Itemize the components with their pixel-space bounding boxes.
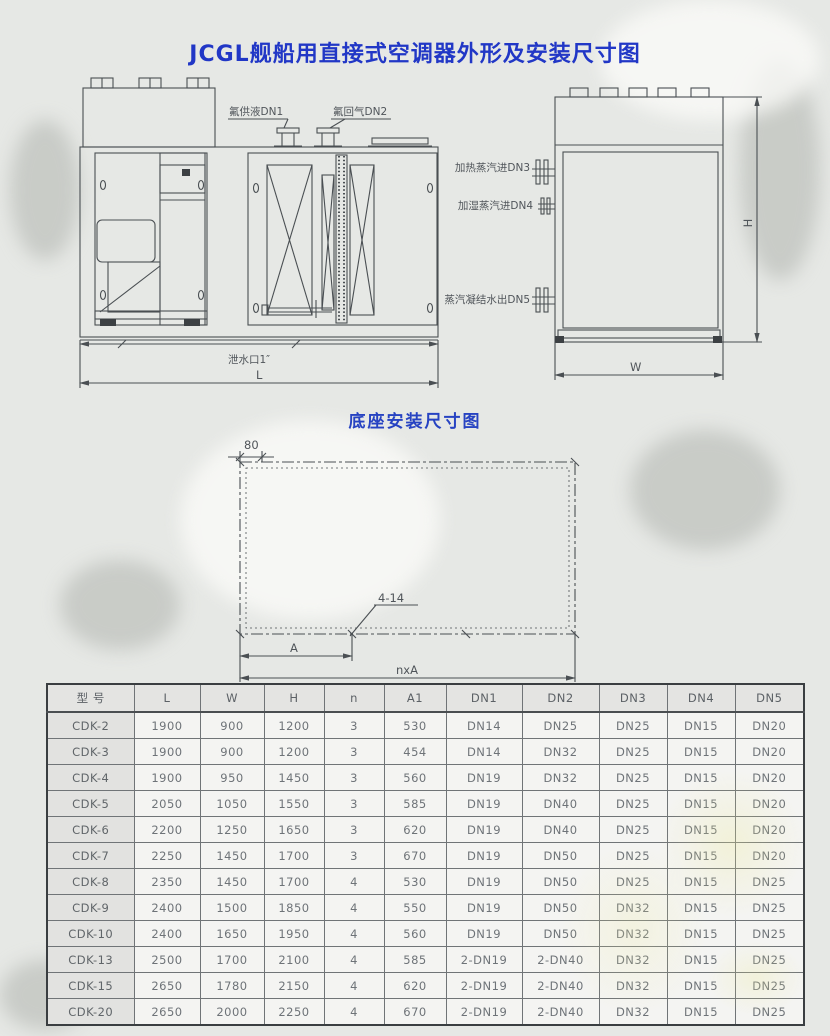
value-cell: 3: [324, 791, 384, 817]
value-cell: 2400: [134, 895, 200, 921]
value-cell: DN15: [667, 973, 735, 999]
value-cell: 2050: [134, 791, 200, 817]
value-cell: DN15: [667, 765, 735, 791]
value-cell: 620: [384, 817, 446, 843]
base-installation-diagram: 80 4-14 A nxA: [0, 435, 830, 690]
dn4-label: 加湿蒸汽进DN4: [458, 199, 533, 212]
spec-table: 型 号LWHnA1DN1DN2DN3DN4DN5 CDK-21900900120…: [46, 683, 805, 1026]
pitch-dim-label: A: [290, 641, 298, 655]
dn5-label: 蒸汽凝结水出DN5: [444, 293, 530, 306]
side-lugs: [570, 88, 709, 97]
value-cell: 2-DN40: [522, 973, 599, 999]
value-cell: 1450: [200, 843, 264, 869]
length-dim-label: L: [256, 368, 263, 382]
coil-section: [248, 153, 437, 325]
side-casing: [555, 97, 723, 342]
value-cell: 1900: [134, 739, 200, 765]
value-cell: 530: [384, 869, 446, 895]
value-cell: 900: [200, 712, 264, 739]
hole-callout-label: 4-14: [378, 591, 404, 605]
value-cell: 620: [384, 973, 446, 999]
value-cell: DN15: [667, 739, 735, 765]
table-row: CDK-1526501780215046202-DN192-DN40DN32DN…: [47, 973, 804, 999]
value-cell: 2500: [134, 947, 200, 973]
value-cell: 4: [324, 947, 384, 973]
dn1-leader: [228, 119, 288, 128]
value-cell: DN20: [735, 791, 804, 817]
value-cell: DN32: [599, 895, 667, 921]
outline-drawing: 氟供液DN1 氟回气DN2 泄水口1″ L: [0, 70, 830, 405]
offset-dimension: [228, 451, 274, 462]
model-cell: CDK-5: [47, 791, 134, 817]
value-cell: 900: [200, 739, 264, 765]
value-cell: 2350: [134, 869, 200, 895]
dn1-label: 氟供液DN1: [229, 105, 283, 118]
value-cell: 2100: [264, 947, 324, 973]
front-top-section: [83, 78, 215, 147]
value-cell: DN20: [735, 765, 804, 791]
model-cell: CDK-6: [47, 817, 134, 843]
value-cell: DN15: [667, 791, 735, 817]
front-view-drawing: [80, 78, 438, 388]
dn3-label: 加热蒸汽进DN3: [455, 161, 530, 174]
value-cell: 560: [384, 921, 446, 947]
value-cell: DN32: [599, 947, 667, 973]
value-cell: 1550: [264, 791, 324, 817]
value-cell: DN25: [735, 947, 804, 973]
value-cell: 1200: [264, 739, 324, 765]
value-cell: DN15: [667, 999, 735, 1026]
table-row: CDK-82350145017004530DN19DN50DN25DN15DN2…: [47, 869, 804, 895]
value-cell: 2000: [200, 999, 264, 1026]
column-header-dn4: DN4: [667, 684, 735, 712]
value-cell: 2-DN40: [522, 999, 599, 1026]
value-cell: 1950: [264, 921, 324, 947]
value-cell: DN14: [446, 712, 522, 739]
value-cell: 1650: [200, 921, 264, 947]
base-diagram-title: 底座安装尺寸图: [0, 407, 830, 432]
value-cell: 2250: [134, 843, 200, 869]
value-cell: 585: [384, 791, 446, 817]
value-cell: 670: [384, 999, 446, 1026]
value-cell: 2-DN19: [446, 947, 522, 973]
value-cell: 530: [384, 712, 446, 739]
value-cell: 1050: [200, 791, 264, 817]
value-cell: 560: [384, 765, 446, 791]
top-flange-plate: [368, 138, 432, 146]
value-cell: 1700: [264, 869, 324, 895]
hole-callout-leader: [350, 605, 418, 636]
value-cell: DN15: [667, 947, 735, 973]
value-cell: DN50: [522, 895, 599, 921]
page-title: JCGL舰船用直接式空调器外形及安装尺寸图: [0, 36, 830, 68]
total-dim-label: nxA: [396, 663, 418, 677]
value-cell: DN25: [735, 869, 804, 895]
value-cell: DN50: [522, 921, 599, 947]
value-cell: DN25: [522, 712, 599, 739]
value-cell: DN20: [735, 739, 804, 765]
value-cell: DN50: [522, 869, 599, 895]
column-header-model: 型 号: [47, 684, 134, 712]
value-cell: 1850: [264, 895, 324, 921]
table-row: CDK-62200125016503620DN19DN40DN25DN15DN2…: [47, 817, 804, 843]
value-cell: DN15: [667, 843, 735, 869]
value-cell: 4: [324, 921, 384, 947]
value-cell: DN25: [735, 921, 804, 947]
value-cell: 4: [324, 973, 384, 999]
value-cell: DN25: [735, 973, 804, 999]
model-cell: CDK-10: [47, 921, 134, 947]
value-cell: DN50: [522, 843, 599, 869]
value-cell: 2150: [264, 973, 324, 999]
value-cell: 1450: [200, 869, 264, 895]
value-cell: DN32: [599, 921, 667, 947]
table-row: CDK-4190095014503560DN19DN32DN25DN15DN20: [47, 765, 804, 791]
value-cell: 3: [324, 739, 384, 765]
spec-table-body: CDK-2190090012003530DN14DN25DN25DN15DN20…: [47, 712, 804, 1025]
value-cell: 4: [324, 895, 384, 921]
value-cell: DN19: [446, 817, 522, 843]
value-cell: 2250: [264, 999, 324, 1026]
value-cell: 1900: [134, 712, 200, 739]
value-cell: 585: [384, 947, 446, 973]
value-cell: DN32: [599, 973, 667, 999]
dn4-pipe-stub: [538, 198, 555, 214]
value-cell: DN15: [667, 869, 735, 895]
dn2-leader: [330, 119, 391, 128]
value-cell: DN40: [522, 817, 599, 843]
value-cell: DN15: [667, 817, 735, 843]
value-cell: DN15: [667, 921, 735, 947]
value-cell: DN25: [735, 999, 804, 1026]
model-cell: CDK-20: [47, 999, 134, 1026]
scanned-page: JCGL舰船用直接式空调器外形及安装尺寸图: [0, 0, 830, 1036]
value-cell: 2-DN19: [446, 973, 522, 999]
value-cell: DN25: [599, 843, 667, 869]
drain-port-label: 泄水口1″: [228, 353, 270, 366]
value-cell: 2-DN19: [446, 999, 522, 1026]
value-cell: 1900: [134, 765, 200, 791]
value-cell: DN32: [522, 739, 599, 765]
dn2-pipe-stub: [314, 128, 342, 147]
value-cell: 1250: [200, 817, 264, 843]
column-header-l: L: [134, 684, 200, 712]
value-cell: 4: [324, 869, 384, 895]
value-cell: DN14: [446, 739, 522, 765]
value-cell: 2400: [134, 921, 200, 947]
offset-dim-label: 80: [244, 438, 259, 452]
table-row: CDK-92400150018504550DN19DN50DN32DN15DN2…: [47, 895, 804, 921]
column-header-dn1: DN1: [446, 684, 522, 712]
model-cell: CDK-4: [47, 765, 134, 791]
column-header-w: W: [200, 684, 264, 712]
value-cell: 3: [324, 843, 384, 869]
value-cell: 1700: [264, 843, 324, 869]
value-cell: DN25: [599, 712, 667, 739]
height-dim-label: H: [741, 219, 755, 228]
dn5-pipe-stub: [532, 288, 555, 312]
value-cell: 2650: [134, 999, 200, 1026]
table-row: CDK-52050105015503585DN19DN40DN25DN15DN2…: [47, 791, 804, 817]
column-header-h: H: [264, 684, 324, 712]
base-frame-outline: [236, 458, 579, 638]
table-row: CDK-3190090012003454DN14DN32DN25DN15DN20: [47, 739, 804, 765]
model-cell: CDK-15: [47, 973, 134, 999]
model-cell: CDK-2: [47, 712, 134, 739]
table-row: CDK-72250145017003670DN19DN50DN25DN15DN2…: [47, 843, 804, 869]
value-cell: DN25: [599, 739, 667, 765]
value-cell: 1700: [200, 947, 264, 973]
model-cell: CDK-3: [47, 739, 134, 765]
value-cell: DN15: [667, 895, 735, 921]
value-cell: 3: [324, 765, 384, 791]
value-cell: DN19: [446, 869, 522, 895]
table-row: CDK-1325001700210045852-DN192-DN40DN32DN…: [47, 947, 804, 973]
model-cell: CDK-9: [47, 895, 134, 921]
value-cell: DN20: [735, 712, 804, 739]
table-row: CDK-102400165019504560DN19DN50DN32DN15DN…: [47, 921, 804, 947]
fan-section: [95, 153, 207, 326]
column-header-dn5: DN5: [735, 684, 804, 712]
column-header-dn3: DN3: [599, 684, 667, 712]
width-dim-label: W: [630, 360, 641, 374]
dn1-pipe-stub: [274, 128, 302, 147]
side-view-drawing: [532, 88, 762, 380]
value-cell: DN19: [446, 765, 522, 791]
value-cell: DN19: [446, 843, 522, 869]
value-cell: 950: [200, 765, 264, 791]
spec-table-header-row: 型 号LWHnA1DN1DN2DN3DN4DN5: [47, 684, 804, 712]
value-cell: DN32: [522, 765, 599, 791]
value-cell: DN25: [599, 765, 667, 791]
dn3-pipe-stub: [532, 160, 555, 184]
value-cell: 2-DN40: [522, 947, 599, 973]
value-cell: DN32: [599, 999, 667, 1026]
value-cell: 2200: [134, 817, 200, 843]
value-cell: 3: [324, 712, 384, 739]
dn2-label: 氟回气DN2: [333, 105, 387, 118]
value-cell: 1500: [200, 895, 264, 921]
value-cell: DN19: [446, 791, 522, 817]
value-cell: DN20: [735, 817, 804, 843]
value-cell: DN40: [522, 791, 599, 817]
table-row: CDK-2190090012003530DN14DN25DN25DN15DN20: [47, 712, 804, 739]
front-chain-dimension: [80, 340, 438, 348]
model-cell: CDK-7: [47, 843, 134, 869]
column-header-dn2: DN2: [522, 684, 599, 712]
value-cell: 1200: [264, 712, 324, 739]
model-cell: CDK-8: [47, 869, 134, 895]
value-cell: 1450: [264, 765, 324, 791]
value-cell: 1780: [200, 973, 264, 999]
column-header-n: n: [324, 684, 384, 712]
value-cell: 2650: [134, 973, 200, 999]
value-cell: 3: [324, 817, 384, 843]
value-cell: DN15: [667, 712, 735, 739]
value-cell: DN25: [599, 817, 667, 843]
value-cell: 4: [324, 999, 384, 1026]
value-cell: DN20: [735, 843, 804, 869]
value-cell: 550: [384, 895, 446, 921]
side-base: [555, 330, 722, 343]
value-cell: 1650: [264, 817, 324, 843]
value-cell: DN25: [599, 869, 667, 895]
value-cell: DN19: [446, 895, 522, 921]
value-cell: DN19: [446, 921, 522, 947]
value-cell: DN25: [735, 895, 804, 921]
value-cell: DN25: [599, 791, 667, 817]
value-cell: 670: [384, 843, 446, 869]
model-cell: CDK-13: [47, 947, 134, 973]
column-header-a1: A1: [384, 684, 446, 712]
table-row: CDK-2026502000225046702-DN192-DN40DN32DN…: [47, 999, 804, 1026]
value-cell: 454: [384, 739, 446, 765]
